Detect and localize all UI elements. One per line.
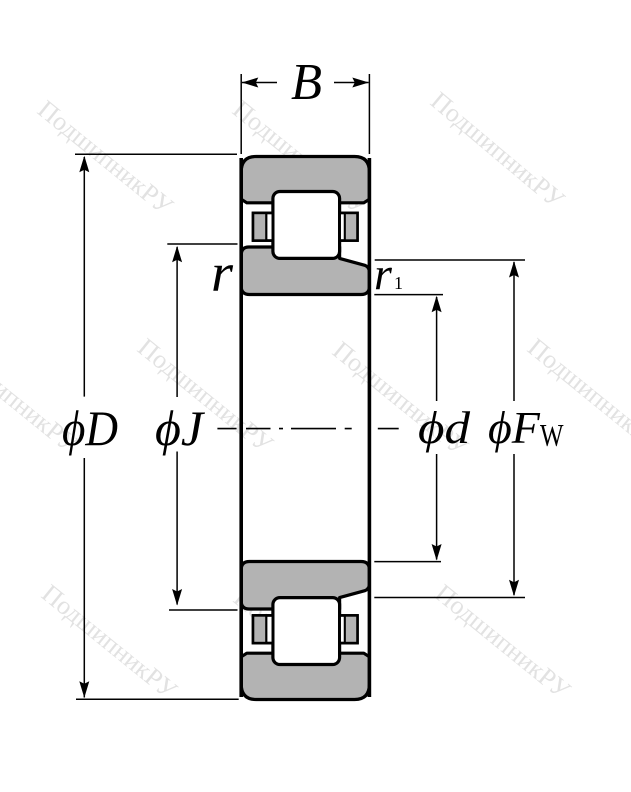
svg-text:1: 1 (394, 273, 403, 293)
svg-text:W: W (540, 417, 564, 453)
svg-text:ПодшипникРУ: ПодшипникРУ (32, 95, 179, 222)
svg-text:r: r (211, 243, 234, 303)
svg-text:ϕD: ϕD (62, 400, 118, 456)
svg-text:ПодшипникРУ: ПодшипникРУ (36, 579, 183, 706)
svg-text:ϕJ: ϕJ (155, 400, 206, 456)
svg-text:ϕF: ϕF (488, 402, 541, 453)
svg-text:ϕd: ϕd (418, 402, 471, 453)
svg-text:r: r (374, 248, 393, 299)
svg-text:ПодшипникРУ: ПодшипникРУ (425, 86, 570, 215)
svg-text:B: B (291, 54, 322, 111)
